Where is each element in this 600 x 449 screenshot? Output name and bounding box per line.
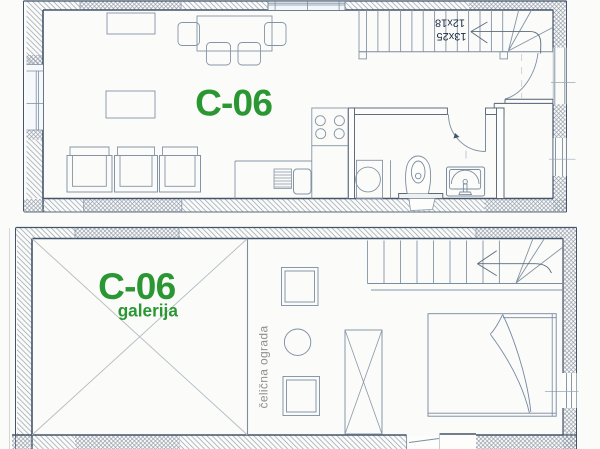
svg-text:C-06: C-06: [195, 82, 272, 123]
svg-text:13x25: 13x25: [437, 30, 467, 42]
svg-text:galerija: galerija: [118, 301, 179, 321]
svg-text:čelična ograda: čelična ograda: [257, 326, 271, 409]
svg-text:12x18: 12x18: [435, 17, 465, 29]
